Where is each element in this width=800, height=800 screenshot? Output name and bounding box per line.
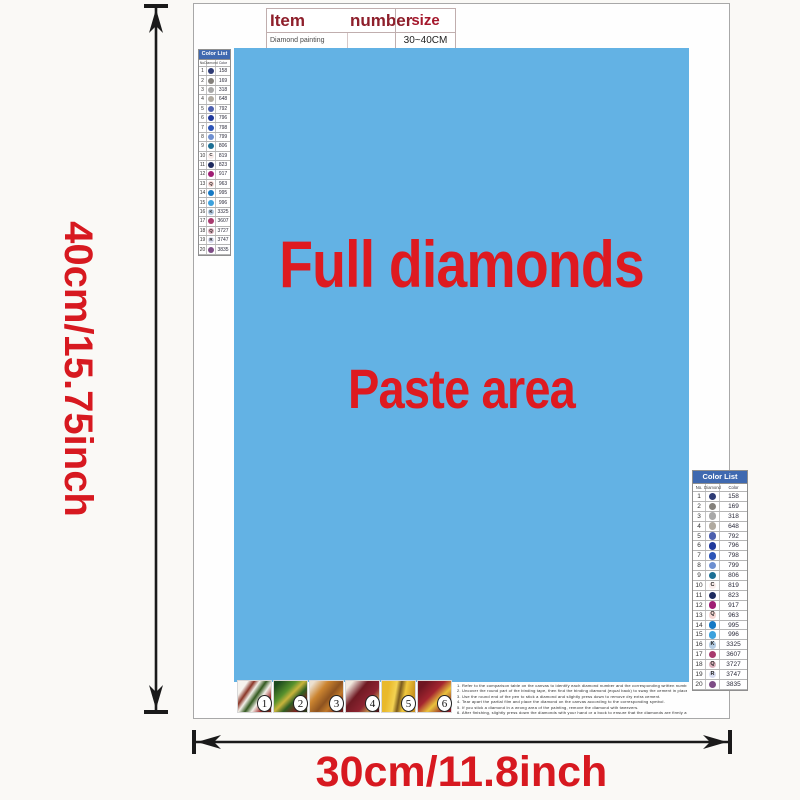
- diamond-symbol-icon: [206, 161, 216, 169]
- size-header-cell: size: [395, 9, 455, 33]
- diamond-symbol-icon: [705, 512, 720, 521]
- dmc-color-code: 3325: [216, 208, 230, 216]
- color-list-row: 16K3325: [199, 208, 230, 217]
- color-list-row: 3318: [199, 86, 230, 95]
- diamond-symbol-icon: [206, 86, 216, 94]
- step-number-badge: 5: [401, 695, 416, 712]
- diamond-symbol-icon: [206, 123, 216, 131]
- color-list-title: Color List: [199, 50, 230, 60]
- row-number: 7: [693, 551, 705, 560]
- instructions-text: 1. Refer to the comparison table on the …: [457, 683, 687, 715]
- dmc-color-code: 318: [216, 86, 230, 94]
- dmc-color-code: 995: [216, 189, 230, 197]
- color-list-left: Color List No. Diamond Color 11582169331…: [198, 49, 231, 256]
- row-number: 17: [199, 217, 206, 225]
- step-photo-6: 6: [417, 680, 452, 713]
- color-list-row: 1158: [693, 492, 747, 502]
- row-number: 10: [199, 152, 206, 160]
- full-diamonds-paste-area: Full diamonds Paste area: [234, 48, 689, 682]
- item-size-table: Item number size Diamond painting 30~40C…: [266, 8, 456, 49]
- dmc-color-code: 792: [720, 532, 747, 541]
- color-list-row: 13Q963: [693, 611, 747, 621]
- color-list-row: 8799: [199, 133, 230, 142]
- dmc-color-code: 798: [216, 123, 230, 131]
- diamond-symbol-icon: [206, 170, 216, 178]
- row-number: 2: [693, 502, 705, 511]
- color-list-row: 203835: [199, 245, 230, 254]
- diamond-symbol-icon: [705, 680, 720, 689]
- row-number: 5: [199, 105, 206, 113]
- diamond-symbol-icon: C: [206, 152, 216, 160]
- row-number: 4: [199, 95, 206, 103]
- dmc-color-code: 3835: [720, 680, 747, 689]
- color-list-column-headers: No. Diamond Color: [199, 60, 230, 67]
- row-number: 18: [199, 227, 206, 235]
- number-header-cell: number: [347, 9, 395, 33]
- dmc-color-code: 3747: [720, 670, 747, 679]
- diamond-symbol-icon: K: [705, 640, 720, 649]
- diamond-symbol-icon: R: [705, 670, 720, 679]
- row-number: 15: [199, 198, 206, 206]
- color-list-row: 4648: [693, 522, 747, 532]
- diamond-symbol-icon: [705, 630, 720, 639]
- dmc-color-code: 169: [216, 76, 230, 84]
- diamond-symbol-icon: [705, 601, 720, 610]
- row-number: 14: [199, 189, 206, 197]
- diamond-symbol-icon: [206, 76, 216, 84]
- color-list-row: 4648: [199, 95, 230, 104]
- diamond-symbol-icon: [705, 541, 720, 550]
- row-number: 20: [199, 245, 206, 253]
- row-number: 14: [693, 621, 705, 630]
- color-list-rows: 11582169331846485792679677988799980610C8…: [199, 67, 230, 255]
- color-list-row: 9806: [199, 142, 230, 151]
- height-dimension-arrow: [139, 2, 173, 716]
- diamond-symbol-icon: [705, 492, 720, 501]
- dmc-color-code: 648: [216, 95, 230, 103]
- dmc-color-code: 806: [216, 142, 230, 150]
- diamond-symbol-icon: [206, 142, 216, 150]
- color-list-row: 5792: [693, 532, 747, 542]
- dmc-color-code: 996: [216, 198, 230, 206]
- diamond-symbol-icon: [705, 561, 720, 570]
- steps-strip: 123456: [237, 680, 453, 713]
- row-number: 12: [199, 170, 206, 178]
- row-number: 13: [199, 180, 206, 188]
- dmc-color-code: 823: [720, 591, 747, 600]
- row-number: 3: [199, 86, 206, 94]
- color-list-row: 18Q3727: [693, 660, 747, 670]
- row-number: 10: [693, 581, 705, 590]
- diamond-symbol-icon: [206, 189, 216, 197]
- color-list-row: 6796: [199, 114, 230, 123]
- dmc-color-code: 3727: [216, 227, 230, 235]
- dmc-color-code: 158: [216, 67, 230, 75]
- color-list-row: 7798: [199, 123, 230, 132]
- step-number-badge: 3: [329, 695, 344, 712]
- color-list-row: 19R3747: [693, 670, 747, 680]
- dmc-color-code: 169: [720, 502, 747, 511]
- color-list-row: 11823: [199, 161, 230, 170]
- dmc-color-code: 799: [720, 561, 747, 570]
- row-number: 6: [199, 114, 206, 122]
- color-list-row: 2169: [199, 76, 230, 85]
- diamond-symbol-icon: [206, 198, 216, 206]
- row-number: 16: [199, 208, 206, 216]
- color-list-row: 14995: [693, 621, 747, 631]
- dmc-color-code: 963: [216, 180, 230, 188]
- dmc-color-code: 3607: [720, 650, 747, 659]
- color-list-row: 11823: [693, 591, 747, 601]
- item-number-cell: [347, 33, 395, 48]
- col-diamond-label: Diamond: [705, 484, 720, 491]
- color-list-row: 8799: [693, 561, 747, 571]
- step-photo-3: 3: [309, 680, 344, 713]
- diamond-symbol-icon: K: [206, 208, 216, 216]
- color-list-row: 13Q963: [199, 180, 230, 189]
- color-list-row: 14995: [199, 189, 230, 198]
- item-name-cell: Diamond painting: [267, 33, 347, 48]
- diamond-symbol-icon: [705, 551, 720, 560]
- color-list-row: 15996: [199, 198, 230, 207]
- color-list-row: 7798: [693, 551, 747, 561]
- diamond-symbol-icon: [705, 650, 720, 659]
- diamond-symbol-icon: R: [206, 236, 216, 244]
- paste-area-subtitle: Paste area: [270, 356, 652, 421]
- color-list-row: 15996: [693, 630, 747, 640]
- color-list-title: Color List: [693, 471, 747, 484]
- dmc-color-code: 917: [216, 170, 230, 178]
- color-list-row: 19R3747: [199, 236, 230, 245]
- diamond-symbol-icon: Q: [705, 611, 720, 620]
- diamond-symbol-icon: [705, 621, 720, 630]
- dmc-color-code: 318: [720, 512, 747, 521]
- diamond-symbol-icon: [206, 114, 216, 122]
- diamond-symbol-icon: [705, 502, 720, 511]
- color-list-right: Color List No. Diamond Color 11582169331…: [692, 470, 748, 691]
- dmc-color-code: 3727: [720, 660, 747, 669]
- diamond-symbol-icon: [206, 133, 216, 141]
- color-list-row: 173607: [693, 650, 747, 660]
- color-list-row: 6796: [693, 541, 747, 551]
- step-photo-4: 4: [345, 680, 380, 713]
- row-number: 17: [693, 650, 705, 659]
- diamond-symbol-icon: [705, 522, 720, 531]
- step-number-badge: 2: [293, 695, 308, 712]
- dmc-color-code: 819: [720, 581, 747, 590]
- color-list-row: 10C819: [199, 152, 230, 161]
- color-list-row: 16K3325: [693, 640, 747, 650]
- dmc-color-code: 3747: [216, 236, 230, 244]
- dmc-color-code: 806: [720, 571, 747, 580]
- diamond-symbol-icon: [206, 105, 216, 113]
- dmc-color-code: 796: [216, 114, 230, 122]
- step-number-badge: 6: [437, 695, 452, 712]
- color-list-row: 5792: [199, 105, 230, 114]
- dmc-color-code: 996: [720, 630, 747, 639]
- diamond-symbol-icon: C: [705, 581, 720, 590]
- width-dimension-label: 30cm/11.8inch: [193, 748, 730, 797]
- color-list-row: 1158: [199, 67, 230, 76]
- color-list-column-headers: No. Diamond Color: [693, 484, 747, 492]
- dmc-color-code: 3607: [216, 217, 230, 225]
- dmc-color-code: 823: [216, 161, 230, 169]
- diamond-symbol-icon: Q: [206, 180, 216, 188]
- diamond-symbol-icon: Q: [705, 660, 720, 669]
- dmc-color-code: 995: [720, 621, 747, 630]
- diamond-symbol-icon: [705, 532, 720, 541]
- row-number: 20: [693, 680, 705, 689]
- row-number: 5: [693, 532, 705, 541]
- diamond-symbol-icon: [705, 591, 720, 600]
- paste-area-title: Full diamonds: [270, 226, 652, 302]
- step-number-badge: 1: [257, 695, 272, 712]
- step-number-badge: 4: [365, 695, 380, 712]
- instruction-line: 4. Tear apart the partial film and place…: [457, 699, 687, 704]
- step-photo-1: 1: [237, 680, 272, 713]
- color-list-rows: 11582169331846485792679677988799980610C8…: [693, 492, 747, 690]
- item-table-data-row: Diamond painting 30~40CM: [267, 33, 455, 48]
- row-number: 18: [693, 660, 705, 669]
- row-number: 15: [693, 630, 705, 639]
- row-number: 11: [199, 161, 206, 169]
- item-size-cell: 30~40CM: [395, 33, 455, 48]
- color-list-row: 12917: [199, 170, 230, 179]
- diamond-symbol-icon: [206, 95, 216, 103]
- row-number: 8: [199, 133, 206, 141]
- dmc-color-code: 796: [720, 541, 747, 550]
- step-photo-5: 5: [381, 680, 416, 713]
- height-dimension-label: 40cm/15.75inch: [56, 219, 100, 519]
- dmc-color-code: 648: [720, 522, 747, 531]
- row-number: 19: [199, 236, 206, 244]
- row-number: 9: [693, 571, 705, 580]
- diamond-symbol-icon: [206, 67, 216, 75]
- instruction-line: 6. After finishing, slightly press down …: [457, 710, 687, 715]
- dmc-color-code: 819: [216, 152, 230, 160]
- row-number: 1: [199, 67, 206, 75]
- color-list-row: 2169: [693, 502, 747, 512]
- dmc-color-code: 798: [720, 551, 747, 560]
- row-number: 7: [199, 123, 206, 131]
- item-header-cell: Item: [267, 9, 347, 33]
- row-number: 13: [693, 611, 705, 620]
- row-number: 19: [693, 670, 705, 679]
- step-photo-2: 2: [273, 680, 308, 713]
- color-list-row: 10C819: [693, 581, 747, 591]
- color-list-row: 9806: [693, 571, 747, 581]
- dmc-color-code: 963: [720, 611, 747, 620]
- col-color-label: Color: [720, 484, 747, 491]
- color-list-row: 18Q3727: [199, 227, 230, 236]
- row-number: 1: [693, 492, 705, 501]
- col-color-label: Color: [216, 60, 230, 66]
- diamond-symbol-icon: [206, 245, 216, 253]
- dmc-color-code: 158: [720, 492, 747, 501]
- color-list-row: 203835: [693, 680, 747, 690]
- dmc-color-code: 3325: [720, 640, 747, 649]
- color-list-row: 3318: [693, 512, 747, 522]
- row-number: 16: [693, 640, 705, 649]
- diamond-symbol-icon: [705, 571, 720, 580]
- row-number: 8: [693, 561, 705, 570]
- diamond-painting-canvas: Item number size Diamond painting 30~40C…: [193, 3, 730, 719]
- color-list-row: 12917: [693, 601, 747, 611]
- dmc-color-code: 792: [216, 105, 230, 113]
- row-number: 2: [199, 76, 206, 84]
- diamond-symbol-icon: Q: [206, 227, 216, 235]
- row-number: 4: [693, 522, 705, 531]
- row-number: 6: [693, 541, 705, 550]
- diamond-symbol-icon: [206, 217, 216, 225]
- row-number: 9: [199, 142, 206, 150]
- col-diamond-label: Diamond: [206, 60, 216, 66]
- row-number: 12: [693, 601, 705, 610]
- row-number: 3: [693, 512, 705, 521]
- row-number: 11: [693, 591, 705, 600]
- color-list-row: 173607: [199, 217, 230, 226]
- dmc-color-code: 799: [216, 133, 230, 141]
- dmc-color-code: 3835: [216, 245, 230, 253]
- dmc-color-code: 917: [720, 601, 747, 610]
- item-table-header-row: Item number size: [267, 9, 455, 33]
